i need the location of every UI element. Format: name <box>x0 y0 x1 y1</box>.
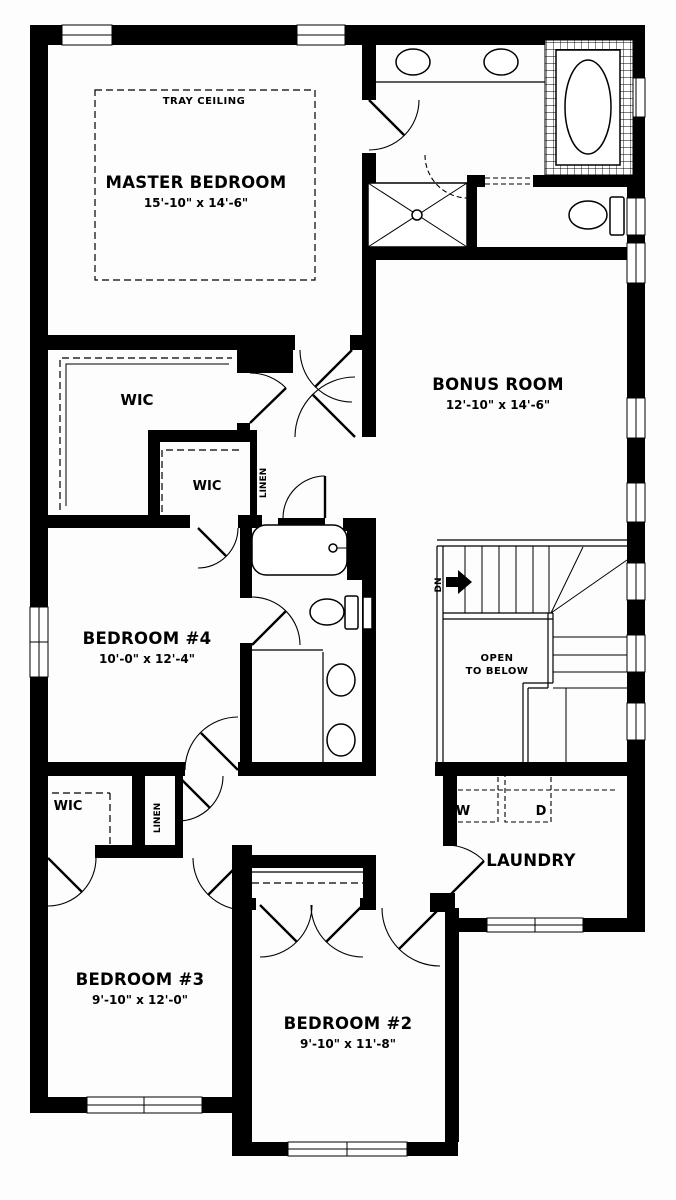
toilet-icon <box>569 197 624 235</box>
window <box>627 483 645 522</box>
window <box>62 25 112 45</box>
window <box>627 243 645 283</box>
window <box>288 1142 407 1156</box>
wic-bedroom4-label: WIC <box>193 479 222 494</box>
open-to-below-line1: OPEN <box>480 653 513 664</box>
wic-master-label: WIC <box>120 391 153 409</box>
bedroom4-dims: 10'-0" x 12'-4" <box>99 652 195 666</box>
bedroom2-dims: 9'-10" x 11'-8" <box>300 1037 396 1051</box>
wic-bedroom3-label: WIC <box>54 799 83 814</box>
bedroom3-dims: 9'-10" x 12'-0" <box>92 993 188 1007</box>
window <box>627 398 645 438</box>
dn-arrow-icon <box>446 570 472 594</box>
shower-icon <box>368 183 467 247</box>
bathtub-fixture <box>252 525 347 575</box>
window <box>627 198 645 235</box>
bedroom2-label: BEDROOM #2 <box>284 1014 413 1033</box>
floor-plan-page: TRAY CEILING MASTER BEDROOM 15'-10" x 14… <box>0 0 676 1200</box>
master-bedroom-label: MASTER BEDROOM <box>106 173 287 192</box>
washer-label: W <box>456 804 470 819</box>
bonus-room-label: BONUS ROOM <box>432 375 564 394</box>
vanity-double-sink <box>376 49 545 82</box>
window <box>487 918 583 932</box>
window <box>627 563 645 600</box>
linen-upper-label: LINEN <box>259 468 269 498</box>
window <box>627 635 645 672</box>
pocket-door <box>485 178 533 184</box>
floor-plan: TRAY CEILING MASTER BEDROOM 15'-10" x 14… <box>0 0 676 1200</box>
open-to-below-line2: TO BELOW <box>466 666 529 677</box>
stairs-dn-label: DN <box>434 577 444 592</box>
stair-treads <box>437 540 627 762</box>
bedroom3-label: BEDROOM #3 <box>76 970 205 989</box>
window <box>87 1097 202 1113</box>
toilet-icon <box>310 596 372 629</box>
laundry-label: LAUNDRY <box>486 851 576 870</box>
window <box>627 703 645 740</box>
bonus-room-dims: 12'-10" x 14'-6" <box>446 398 550 412</box>
dryer-label: D <box>536 804 547 819</box>
bathtub-fixture <box>545 40 633 175</box>
window <box>30 607 48 677</box>
tray-ceiling-label: TRAY CEILING <box>163 96 246 107</box>
linen-lower-label: LINEN <box>153 803 163 833</box>
bedroom4-label: BEDROOM #4 <box>83 629 212 648</box>
master-bedroom-dims: 15'-10" x 14'-6" <box>144 196 248 210</box>
vanity-double-sink <box>252 650 355 762</box>
window <box>297 25 345 45</box>
